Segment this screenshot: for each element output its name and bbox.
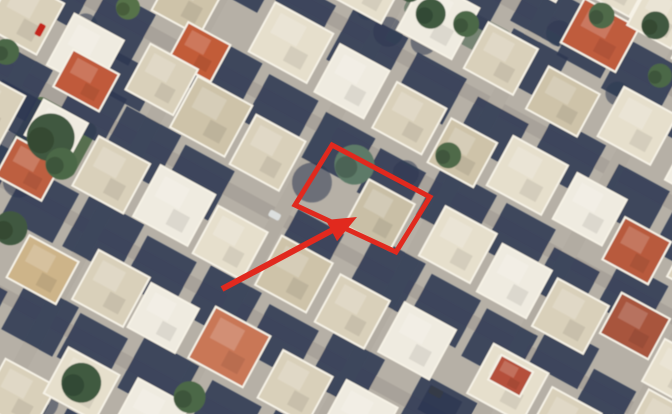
aerial-photo xyxy=(0,0,672,414)
satellite-view xyxy=(0,0,672,414)
